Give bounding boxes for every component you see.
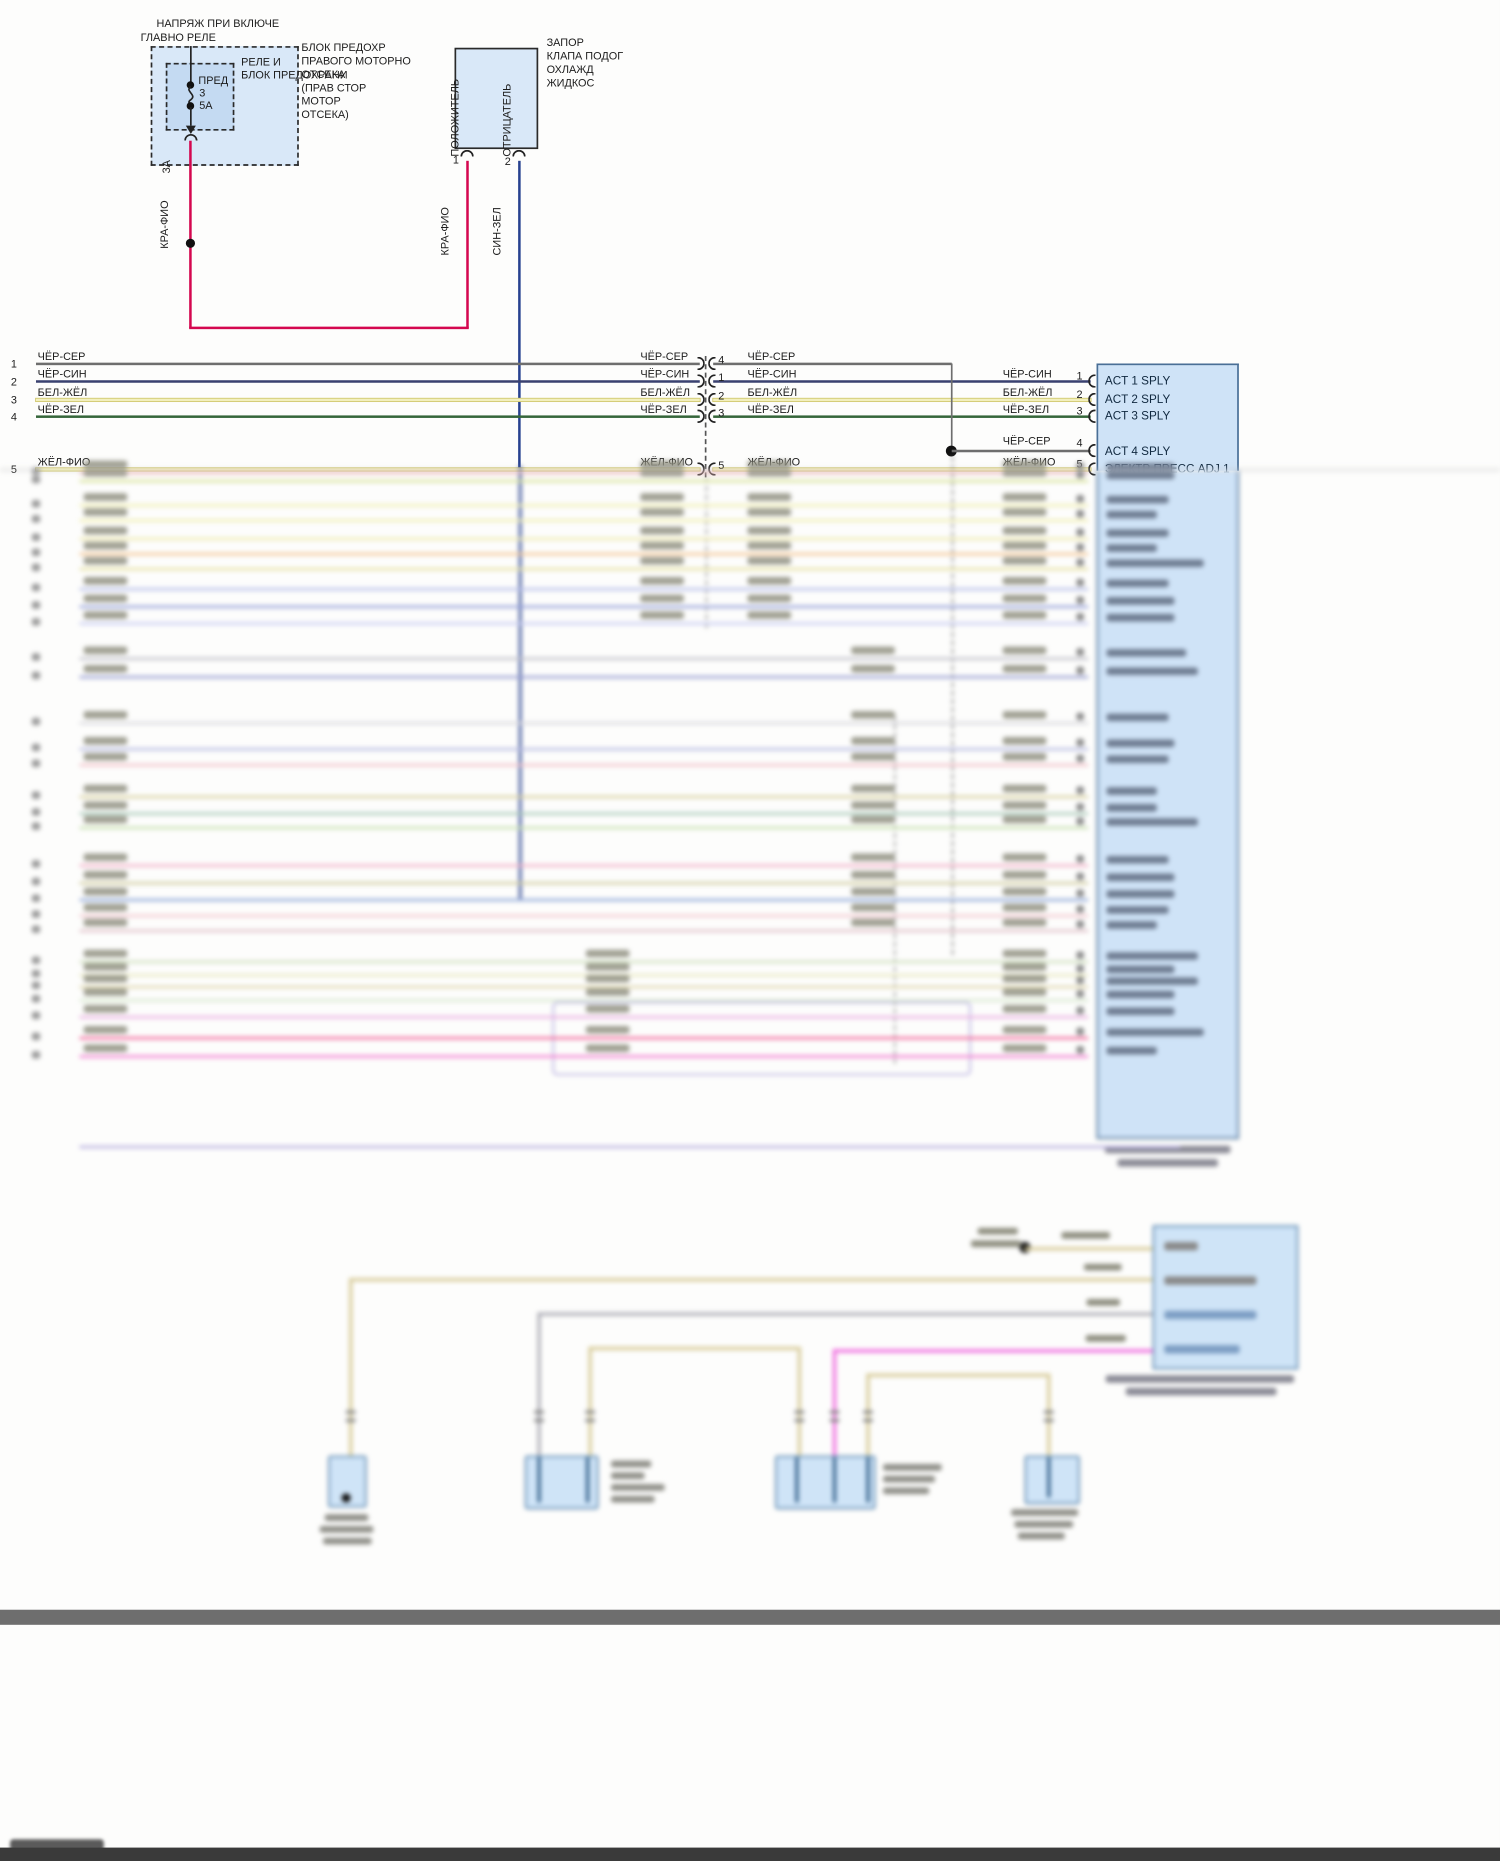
blur-wire-row bbox=[80, 1037, 1089, 1040]
bottom-drop-wire bbox=[349, 1278, 352, 1456]
pin-number-smudge bbox=[1076, 1007, 1084, 1015]
blur-wire-row bbox=[80, 999, 1089, 1002]
pin-number-smudge bbox=[1076, 739, 1084, 747]
wire-label-smudge bbox=[84, 508, 128, 516]
blur-vertical-wire bbox=[952, 456, 954, 954]
blur-wire-row bbox=[80, 882, 1089, 885]
blur-wire-row bbox=[80, 553, 1089, 556]
bottom-wire bbox=[833, 1349, 1153, 1352]
pin-number-smudge bbox=[1076, 495, 1084, 503]
blur-wire-row bbox=[80, 748, 1089, 751]
ecm-pin-smudge bbox=[1107, 529, 1169, 537]
wire-label-smudge bbox=[1003, 1005, 1047, 1013]
wire-label-smudge bbox=[1003, 508, 1047, 516]
pin-number-smudge bbox=[1076, 905, 1084, 913]
wire-label-smudge bbox=[586, 950, 630, 958]
wire-label-smudge bbox=[84, 527, 128, 535]
ecm-pin-smudge bbox=[1107, 559, 1204, 567]
drop-connector-mark bbox=[863, 1419, 873, 1422]
bottom-drop-wire bbox=[1047, 1374, 1050, 1456]
ecm-pin-smudge bbox=[1107, 472, 1175, 480]
wire-label-smudge bbox=[851, 853, 895, 861]
drop-connector-mark bbox=[1044, 1419, 1054, 1422]
bottom-wire bbox=[1025, 1247, 1153, 1250]
row-number-smudge bbox=[32, 476, 40, 484]
blur-boundary bbox=[0, 467, 1500, 472]
wire-label-smudge bbox=[84, 711, 128, 719]
pin-number-smudge bbox=[1076, 786, 1084, 794]
wire-label-smudge bbox=[747, 493, 791, 501]
ecm-pin-smudge bbox=[1107, 614, 1175, 622]
ecm-pin-smudge bbox=[1107, 1047, 1157, 1055]
wire-label-smudge bbox=[747, 557, 791, 565]
bottom-wire bbox=[349, 1278, 1153, 1281]
component-caption-smudge bbox=[611, 1484, 665, 1491]
bottom-wire-label-smudge bbox=[1086, 1335, 1126, 1342]
pin-number-smudge bbox=[1076, 817, 1084, 825]
bottom-wire-label-smudge bbox=[1084, 1264, 1122, 1271]
component-caption-smudge bbox=[883, 1476, 935, 1483]
wire-label-smudge bbox=[84, 611, 128, 619]
wire-label-smudge bbox=[84, 888, 128, 896]
wire-label-smudge bbox=[747, 542, 791, 550]
pin-number-smudge bbox=[1076, 977, 1084, 985]
row-number-smudge bbox=[32, 894, 40, 902]
bottom-label-smudge bbox=[978, 1228, 1018, 1235]
wire-label-smudge bbox=[1003, 988, 1047, 996]
wire-label-smudge bbox=[1003, 611, 1047, 619]
wire-label-smudge bbox=[1003, 737, 1047, 745]
ecm-pin-smudge bbox=[1107, 511, 1157, 519]
blur-wire-row bbox=[80, 519, 1089, 522]
wire-label-smudge bbox=[640, 508, 684, 516]
wire-label-smudge bbox=[640, 611, 684, 619]
component-caption-smudge bbox=[323, 1538, 372, 1545]
pin-number-smudge bbox=[1076, 1046, 1084, 1054]
wire-label-smudge bbox=[640, 542, 684, 550]
wire-label-smudge bbox=[84, 647, 128, 655]
lower-block-caption-smudge bbox=[1106, 1375, 1294, 1383]
ecm-pin-smudge bbox=[1107, 906, 1169, 914]
row-number-smudge bbox=[32, 744, 40, 752]
wire-label-smudge bbox=[1003, 963, 1047, 971]
component-pin-bar bbox=[586, 1457, 589, 1502]
blur-wire-row bbox=[80, 986, 1089, 989]
wire-label-smudge bbox=[640, 493, 684, 501]
wire-label-smudge bbox=[747, 595, 791, 603]
drop-connector-mark bbox=[863, 1410, 873, 1413]
wire-label-smudge bbox=[851, 647, 895, 655]
row-number-smudge bbox=[32, 549, 40, 557]
wire-label-smudge bbox=[84, 557, 128, 565]
pin-number-smudge bbox=[1076, 755, 1084, 763]
blur-wire-row bbox=[80, 961, 1089, 964]
wire-label-smudge bbox=[586, 1005, 630, 1013]
lower-block-pin-smudge bbox=[1164, 1345, 1239, 1353]
component-caption-smudge bbox=[883, 1487, 929, 1494]
wire-label-smudge bbox=[84, 542, 128, 550]
row-number-smudge bbox=[32, 672, 40, 680]
drop-connector-mark bbox=[794, 1410, 804, 1413]
wire-label-smudge bbox=[586, 963, 630, 971]
bottom-drop-wire bbox=[588, 1347, 591, 1456]
blur-wire-row bbox=[80, 480, 1089, 483]
wire-label-smudge bbox=[84, 853, 128, 861]
wire-label-smudge bbox=[1003, 665, 1047, 673]
wire-label-smudge bbox=[1003, 577, 1047, 585]
component-dot bbox=[342, 1493, 351, 1502]
wire-label-smudge bbox=[84, 963, 128, 971]
pin-number-smudge bbox=[1076, 873, 1084, 881]
wire-label-smudge bbox=[84, 1005, 128, 1013]
blur-wire-row bbox=[80, 930, 1089, 933]
wire-label-smudge bbox=[851, 871, 895, 879]
blur-wire-row bbox=[80, 504, 1089, 507]
blur-wire-row bbox=[80, 622, 1089, 625]
wire-label-smudge bbox=[84, 988, 128, 996]
blur-wire-row bbox=[80, 606, 1089, 609]
row-number-smudge bbox=[32, 1051, 40, 1059]
blur-wire-row bbox=[80, 827, 1089, 830]
row-number-smudge bbox=[32, 653, 40, 661]
ecm-pin-smudge bbox=[1107, 668, 1198, 676]
bottom-drop-wire bbox=[537, 1312, 540, 1455]
ecm-pin-smudge bbox=[1107, 755, 1169, 763]
row-number-smudge bbox=[32, 718, 40, 726]
wire-label-smudge bbox=[84, 816, 128, 824]
wire-label-smudge bbox=[851, 919, 895, 927]
wire-label-smudge bbox=[84, 753, 128, 761]
drop-connector-mark bbox=[585, 1410, 595, 1413]
drop-connector-mark bbox=[534, 1410, 544, 1413]
wire-label-smudge bbox=[747, 611, 791, 619]
wiring-diagram-page: НАПРЯЖ ПРИ ВКЛЮЧЕ ГЛАВНО РЕЛЕ ПРЕД 3 5А … bbox=[0, 0, 1500, 1861]
pin-number-smudge bbox=[1076, 1028, 1084, 1036]
ecm-pin-smudge bbox=[1107, 649, 1187, 657]
wire-label-smudge bbox=[747, 577, 791, 585]
component-caption-smudge bbox=[611, 1472, 644, 1479]
bottom-drop-wire bbox=[798, 1347, 801, 1456]
wire-label-smudge bbox=[1003, 595, 1047, 603]
row-number-smudge bbox=[32, 760, 40, 768]
pin-number-smudge bbox=[1076, 510, 1084, 518]
component-pin-bar bbox=[833, 1457, 836, 1502]
ecm-pin-smudge bbox=[1107, 1008, 1175, 1016]
wire-label-smudge bbox=[640, 527, 684, 535]
blur-wire-row bbox=[80, 974, 1089, 977]
lower-block-pin-smudge bbox=[1164, 1311, 1256, 1319]
wire-label-smudge bbox=[1003, 542, 1047, 550]
pin-number-smudge bbox=[1076, 579, 1084, 587]
component-caption-smudge bbox=[1015, 1521, 1074, 1528]
row-number-smudge bbox=[32, 808, 40, 816]
ecm-pin-smudge bbox=[1107, 580, 1169, 588]
wire-label-smudge bbox=[851, 802, 895, 810]
wire-label-smudge bbox=[84, 919, 128, 927]
row-number-smudge bbox=[32, 564, 40, 572]
wire-label-smudge bbox=[84, 785, 128, 793]
diagram-canvas: НАПРЯЖ ПРИ ВКЛЮЧЕ ГЛАВНО РЕЛЕ ПРЕД 3 5А … bbox=[0, 0, 1500, 1861]
blur-wire-row bbox=[80, 568, 1089, 571]
wire-label-smudge bbox=[84, 975, 128, 983]
blur-wire-row bbox=[80, 722, 1089, 725]
wire-label-smudge bbox=[851, 785, 895, 793]
wire-label-smudge bbox=[1003, 853, 1047, 861]
component-caption-smudge bbox=[325, 1514, 369, 1521]
wire-label-smudge bbox=[84, 950, 128, 958]
block-caption-smudge bbox=[1117, 1159, 1217, 1167]
blur-wire-row bbox=[80, 1016, 1089, 1019]
wire-label-smudge bbox=[586, 975, 630, 983]
blur-wire-row bbox=[80, 764, 1089, 767]
blur-wire-row bbox=[80, 657, 1089, 660]
component-box bbox=[1025, 1456, 1080, 1505]
pin-number-smudge bbox=[1076, 596, 1084, 604]
row-number-smudge bbox=[32, 925, 40, 933]
pin-number-smudge bbox=[1076, 667, 1084, 675]
bottom-drop-wire bbox=[866, 1374, 869, 1456]
row-number-smudge bbox=[32, 970, 40, 978]
wire-label-smudge bbox=[84, 802, 128, 810]
ecm-pin-smudge bbox=[1107, 921, 1157, 929]
ecm-pin-smudge bbox=[1107, 890, 1175, 898]
ecm-pin-smudge bbox=[1107, 496, 1169, 504]
wire-label-smudge bbox=[84, 577, 128, 585]
row-number-smudge bbox=[32, 618, 40, 626]
drop-connector-mark bbox=[534, 1419, 544, 1422]
wire-label-smudge bbox=[1003, 711, 1047, 719]
ecm-pin-smudge bbox=[1107, 952, 1198, 960]
blur-wire-row bbox=[80, 1055, 1089, 1058]
drop-connector-mark bbox=[346, 1410, 356, 1413]
wire-label-smudge bbox=[84, 904, 128, 912]
wire-label-smudge bbox=[1003, 493, 1047, 501]
row-number-smudge bbox=[32, 500, 40, 508]
wire-label-smudge bbox=[1003, 753, 1047, 761]
ecm-pin-smudge bbox=[1107, 544, 1157, 552]
component-caption-smudge bbox=[611, 1496, 655, 1503]
lower-block-pin-smudge bbox=[1164, 1276, 1256, 1284]
ecm-pin-smudge bbox=[1107, 991, 1175, 999]
row-number-smudge bbox=[32, 515, 40, 523]
bottom-wire-label-smudge bbox=[1061, 1232, 1110, 1239]
wire-label-smudge bbox=[1003, 816, 1047, 824]
component-pin-bar bbox=[537, 1457, 540, 1502]
wire-label-smudge bbox=[851, 665, 895, 673]
ecm-pin-smudge bbox=[1107, 787, 1157, 795]
ecm-pin-smudge bbox=[1107, 966, 1175, 974]
ecm-pin-smudge bbox=[1107, 740, 1175, 748]
blur-wire-row bbox=[80, 676, 1089, 679]
ecm-pin-smudge bbox=[1107, 597, 1175, 605]
pin-number-smudge bbox=[1076, 889, 1084, 897]
wire-label-smudge bbox=[1003, 785, 1047, 793]
drop-connector-mark bbox=[585, 1419, 595, 1422]
blurred-diagram-region bbox=[0, 0, 1500, 1861]
bottom-wire bbox=[588, 1347, 797, 1350]
wire-label-smudge bbox=[1003, 975, 1047, 983]
wire-label-smudge bbox=[1003, 904, 1047, 912]
wire-label-smudge bbox=[586, 1026, 630, 1034]
component-caption-smudge bbox=[883, 1464, 942, 1471]
drop-connector-mark bbox=[830, 1419, 840, 1422]
pin-number-smudge bbox=[1076, 951, 1084, 959]
ecm-pin-smudge bbox=[1107, 1028, 1204, 1036]
wire-label-smudge bbox=[747, 527, 791, 535]
component-caption-smudge bbox=[1018, 1533, 1065, 1540]
component-box bbox=[775, 1456, 875, 1510]
ecm-pin-smudge bbox=[1107, 874, 1175, 882]
component-pin-bar bbox=[1047, 1457, 1050, 1497]
wire-label-smudge bbox=[851, 816, 895, 824]
pin-number-smudge bbox=[1076, 559, 1084, 567]
bottom-wire bbox=[866, 1374, 1047, 1377]
ecm-pin-smudge bbox=[1107, 977, 1198, 985]
blur-vertical-wire bbox=[519, 466, 522, 899]
drop-connector-mark bbox=[794, 1419, 804, 1422]
row-number-smudge bbox=[32, 822, 40, 830]
wire-label-smudge bbox=[640, 557, 684, 565]
wire-label-smudge bbox=[1003, 888, 1047, 896]
pin-number-smudge bbox=[1076, 544, 1084, 552]
row-number-smudge bbox=[32, 995, 40, 1003]
row-number-smudge bbox=[32, 584, 40, 592]
row-number-smudge bbox=[32, 601, 40, 609]
pin-number-smudge bbox=[1076, 613, 1084, 621]
component-caption-smudge bbox=[320, 1526, 374, 1533]
lower-block-pin-smudge bbox=[1164, 1242, 1197, 1250]
bottom-wire bbox=[537, 1312, 1152, 1315]
wire-label-smudge bbox=[851, 753, 895, 761]
lavender-wire bbox=[80, 1146, 1181, 1149]
ecm-pin-smudge bbox=[1107, 818, 1198, 826]
blur-wire-row bbox=[80, 538, 1089, 541]
wire-label-smudge bbox=[1003, 557, 1047, 565]
pin-number-smudge bbox=[1076, 990, 1084, 998]
wire-label-smudge bbox=[1003, 527, 1047, 535]
wire-label-smudge bbox=[851, 711, 895, 719]
pin-number-smudge bbox=[1076, 713, 1084, 721]
pin-number-smudge bbox=[1076, 920, 1084, 928]
drop-connector-mark bbox=[346, 1419, 356, 1422]
row-number-smudge bbox=[32, 791, 40, 799]
wire-label-smudge bbox=[84, 737, 128, 745]
blur-wire-row bbox=[80, 812, 1089, 815]
drop-connector-mark bbox=[830, 1410, 840, 1413]
wire-label-smudge bbox=[1003, 1026, 1047, 1034]
lower-block-caption-smudge bbox=[1126, 1388, 1277, 1396]
pin-number-smudge bbox=[1076, 528, 1084, 536]
wire-label-smudge bbox=[851, 904, 895, 912]
row-number-smudge bbox=[32, 1012, 40, 1020]
wire-label-smudge bbox=[1003, 919, 1047, 927]
wire-label-smudge bbox=[851, 888, 895, 896]
row-number-smudge bbox=[32, 1033, 40, 1041]
wire-label-smudge bbox=[586, 988, 630, 996]
row-number-smudge bbox=[32, 534, 40, 542]
component-caption-smudge bbox=[1011, 1509, 1078, 1516]
bottom-label-smudge bbox=[971, 1240, 1021, 1247]
row-number-smudge bbox=[32, 910, 40, 918]
wire-label-smudge bbox=[851, 737, 895, 745]
bottom-wire-label-smudge bbox=[1086, 1299, 1119, 1306]
component-caption-smudge bbox=[611, 1461, 651, 1468]
wire-label-smudge bbox=[747, 508, 791, 516]
blur-wire-row bbox=[80, 588, 1089, 591]
blur-vertical-wire bbox=[706, 469, 708, 628]
row-number-smudge bbox=[32, 982, 40, 990]
wire-label-smudge bbox=[1003, 802, 1047, 810]
pin-number-smudge bbox=[1076, 855, 1084, 863]
row-number-smudge bbox=[32, 860, 40, 868]
blur-wire-row bbox=[80, 915, 1089, 918]
wire-label-smudge bbox=[84, 1044, 128, 1052]
pin-number-smudge bbox=[1076, 965, 1084, 973]
wire-label-smudge bbox=[84, 665, 128, 673]
drop-connector-mark bbox=[1044, 1410, 1054, 1413]
wire-label-smudge bbox=[586, 1044, 630, 1052]
row-number-smudge bbox=[32, 956, 40, 964]
wire-label-smudge bbox=[84, 1026, 128, 1034]
blur-wire-row bbox=[80, 796, 1089, 799]
ecm-pin-smudge bbox=[1107, 804, 1157, 812]
ecm-pin-smudge bbox=[1107, 714, 1169, 722]
pin-number-smudge bbox=[1076, 803, 1084, 811]
wire-label-smudge bbox=[640, 595, 684, 603]
wire-label-smudge bbox=[1003, 647, 1047, 655]
wire-label-smudge bbox=[1003, 1044, 1047, 1052]
component-pin-bar bbox=[795, 1457, 798, 1502]
wire-label-smudge bbox=[1003, 950, 1047, 958]
wire-label-smudge bbox=[84, 871, 128, 879]
row-number-smudge bbox=[32, 878, 40, 886]
wire-label-smudge bbox=[84, 595, 128, 603]
wire-label-smudge bbox=[1003, 871, 1047, 879]
blur-wire-row bbox=[80, 864, 1089, 867]
component-pin-bar bbox=[866, 1457, 869, 1502]
pin-number-smudge bbox=[1076, 648, 1084, 656]
ecm-pin-smudge bbox=[1107, 856, 1169, 864]
blur-wire-row bbox=[80, 899, 1089, 902]
wire-label-smudge bbox=[640, 577, 684, 585]
wire-label-smudge bbox=[84, 493, 128, 501]
